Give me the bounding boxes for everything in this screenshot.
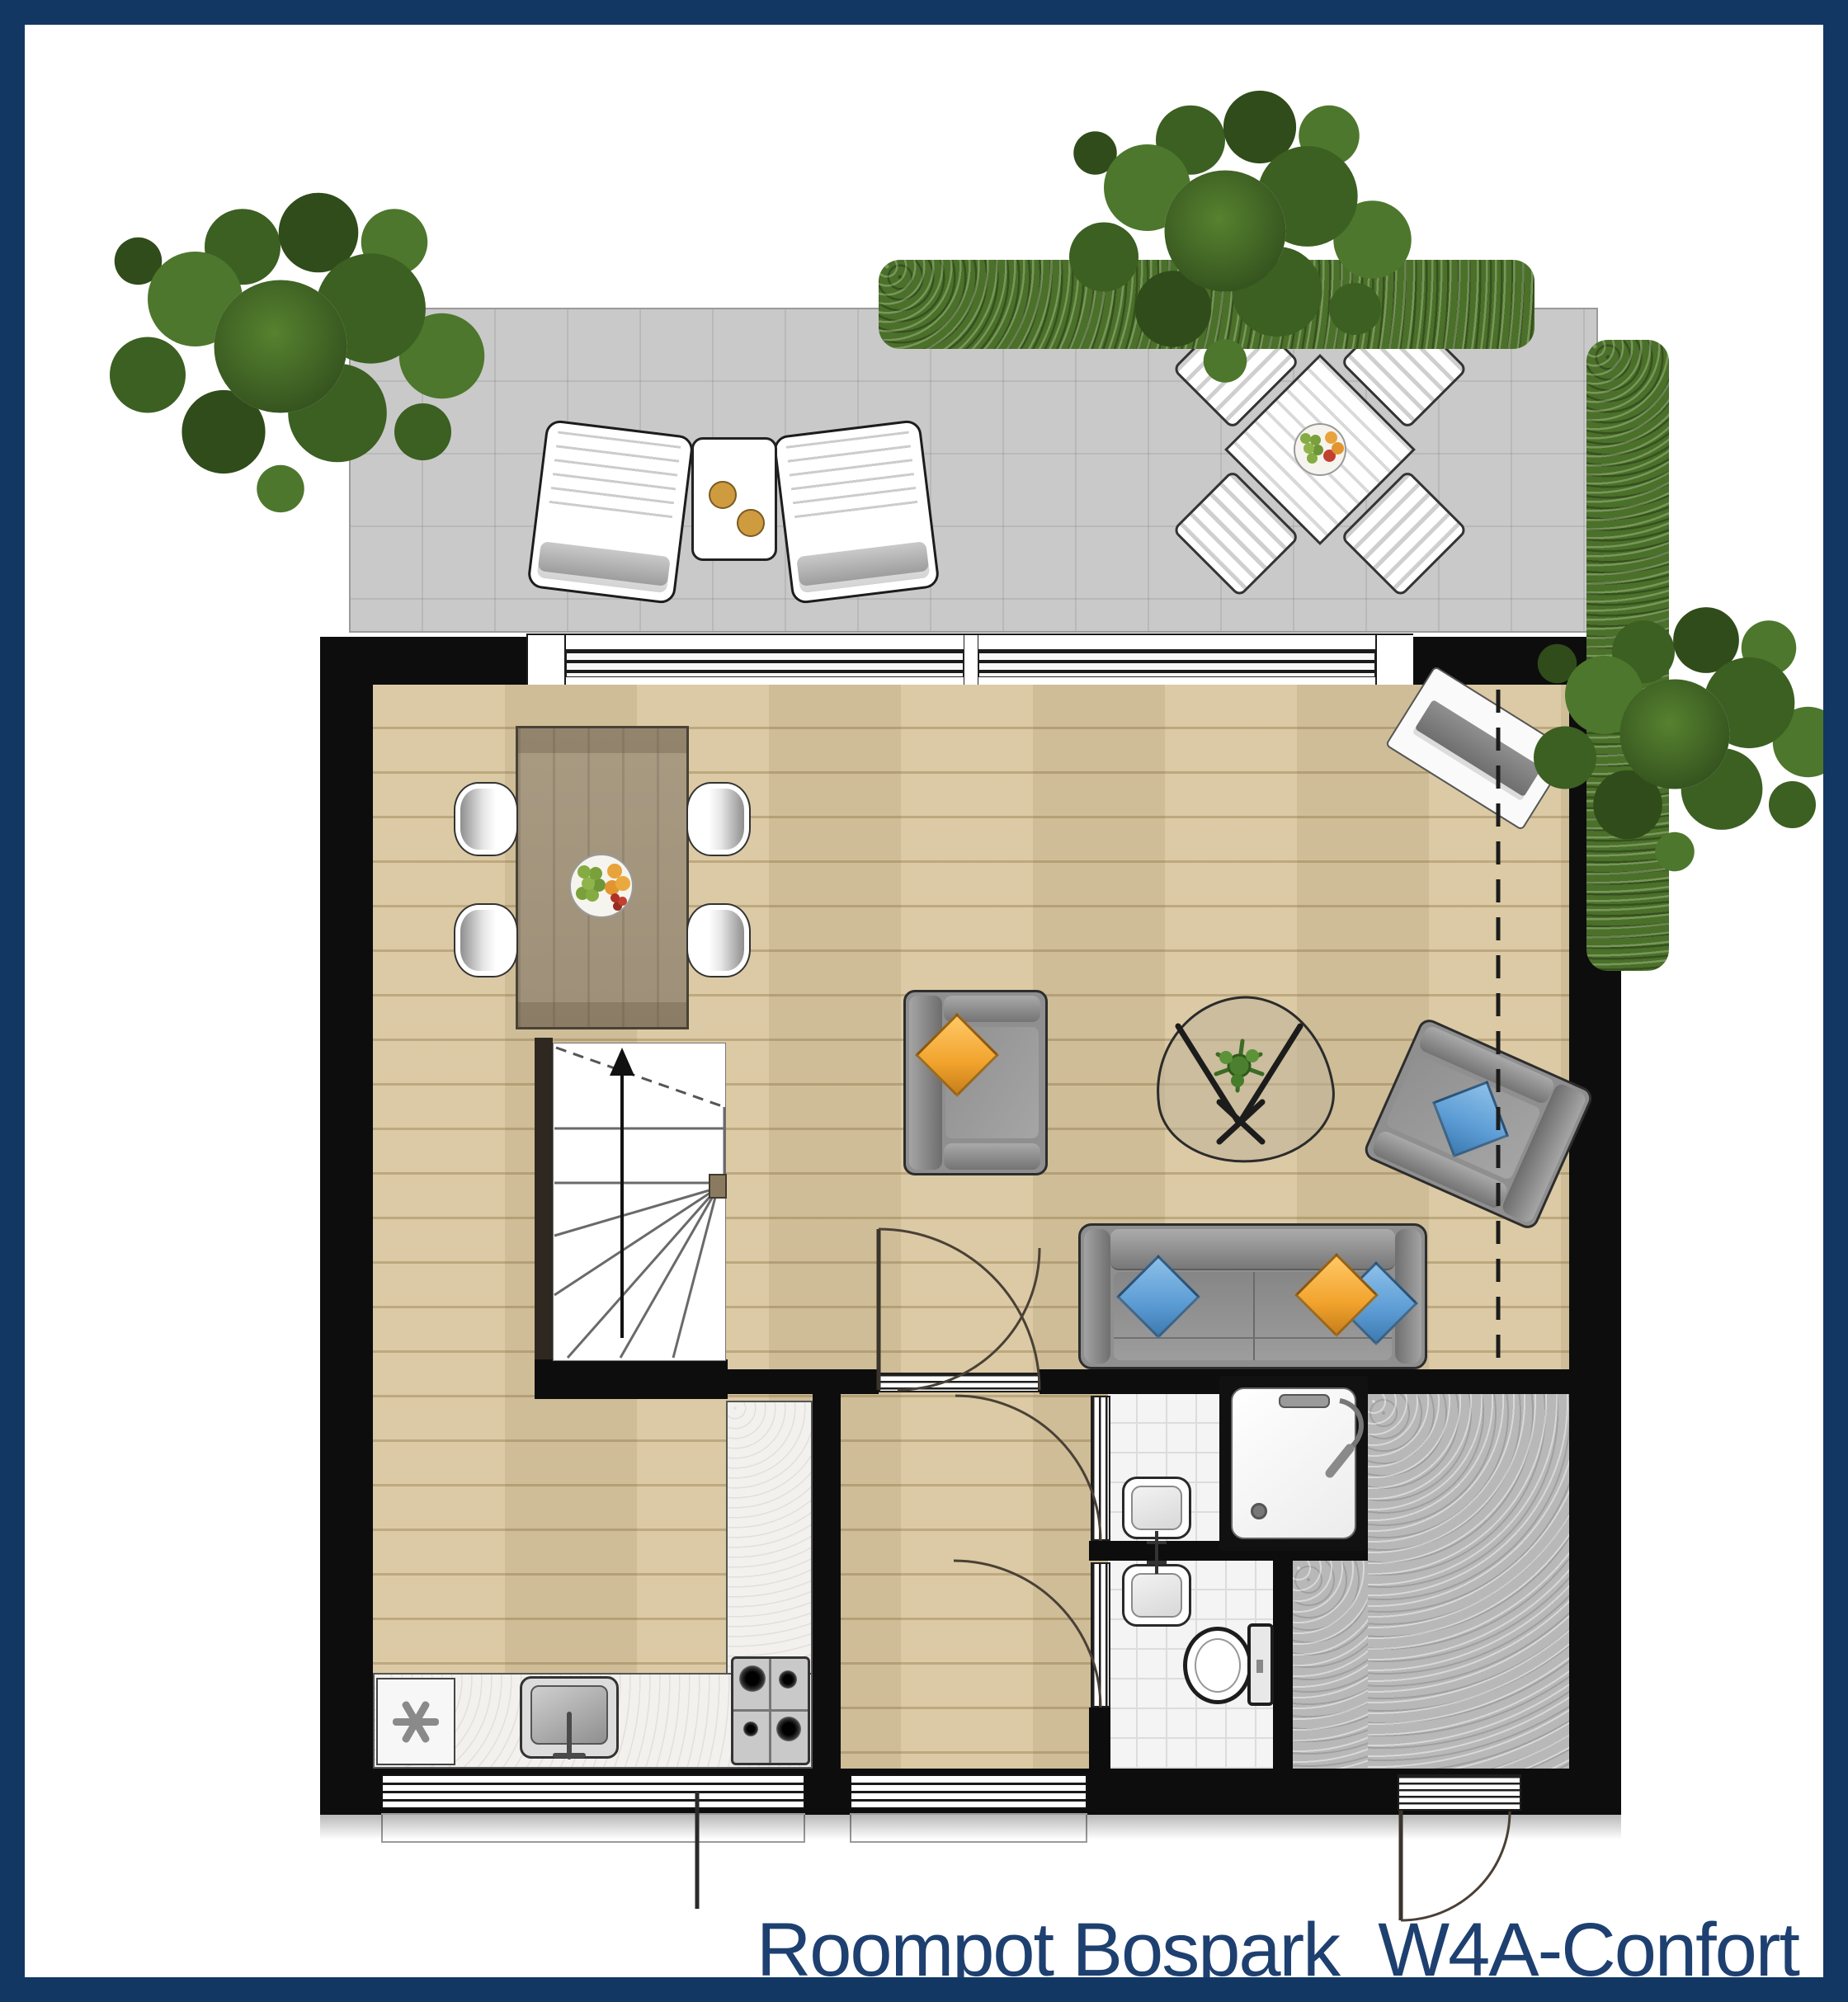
hall-door-opening: [879, 1373, 1039, 1392]
burner-icon: [739, 1665, 766, 1692]
wall-left: [320, 637, 373, 1815]
dining-chair-icon: [454, 903, 518, 977]
staircase: [535, 1033, 728, 1399]
toilet-door: [1091, 1562, 1110, 1708]
tree-icon: [1620, 680, 1730, 789]
toilet: [1183, 1623, 1274, 1709]
table-apron: [518, 1002, 686, 1027]
sofa: [1078, 1223, 1427, 1369]
gas-stove: [731, 1656, 810, 1765]
burner-icon: [779, 1670, 797, 1689]
coffee-cup-icon: [709, 481, 737, 509]
fruit-bowl-icon: [1294, 423, 1346, 476]
bathroom-left-wall-segment: [1089, 1708, 1110, 1772]
shower-drain-icon: [1251, 1503, 1267, 1519]
lounge-chair-icon: [772, 419, 940, 605]
dining-chair-icon: [686, 903, 751, 977]
sliding-door-glass-panel: [978, 649, 1375, 677]
stair-bottom-wall: [535, 1359, 728, 1399]
hallway-window: [850, 1774, 1087, 1809]
shower: [1219, 1376, 1368, 1551]
bathroom-washbasin: [1122, 1477, 1191, 1539]
coffee-cup-icon: [737, 509, 765, 537]
lounge-chair-icon: [526, 419, 695, 605]
interior-wall: [726, 1369, 879, 1394]
burner-icon: [776, 1717, 801, 1741]
entrance-door-threshold: [1398, 1774, 1521, 1811]
stair-side-wall: [535, 1038, 553, 1368]
entrance-hall-floor: [1368, 1394, 1569, 1769]
kitchen-window: [381, 1774, 805, 1809]
fruit-bowl-icon: [569, 854, 634, 918]
armchair-back: [909, 996, 942, 1170]
sliding-door-glass-panel: [566, 649, 964, 677]
table-apron: [518, 728, 686, 753]
interior-wall-kitchen: [813, 1392, 841, 1769]
kitchen-sink: [520, 1676, 619, 1759]
dining-chair-icon: [454, 782, 518, 856]
toilet-bowl: [1183, 1627, 1252, 1704]
shower-pan: [1231, 1387, 1356, 1539]
freezer: [376, 1678, 455, 1765]
armchair-orange: [903, 990, 1048, 1175]
sofa-arm: [1084, 1229, 1110, 1364]
stair-treads: [553, 1043, 726, 1361]
shower-head-icon: [1279, 1394, 1330, 1408]
toilet-washbasin: [1122, 1564, 1191, 1627]
burner-icon: [743, 1722, 758, 1736]
entrance-hall-floor: [1293, 1561, 1368, 1769]
toilet-right-wall: [1273, 1561, 1293, 1769]
dining-chair-icon: [686, 782, 751, 856]
lounge-side-table-icon: [691, 437, 777, 561]
tree-icon: [214, 280, 347, 413]
bathroom-door: [1091, 1396, 1110, 1541]
tree-icon: [1165, 171, 1286, 292]
sink-basin: [530, 1685, 608, 1745]
plan-title: Roompot Bospark W4A-Confort: [726, 1907, 1798, 1994]
armchair-blue: [1384, 1029, 1572, 1219]
floor-plan-canvas: Roompot Bospark W4A-Confort: [0, 0, 1848, 2002]
toilet-cistern: [1247, 1623, 1274, 1706]
armchair-arm: [944, 1143, 1040, 1170]
house-shadow: [320, 1815, 1621, 1839]
hedge-right: [1586, 340, 1669, 971]
